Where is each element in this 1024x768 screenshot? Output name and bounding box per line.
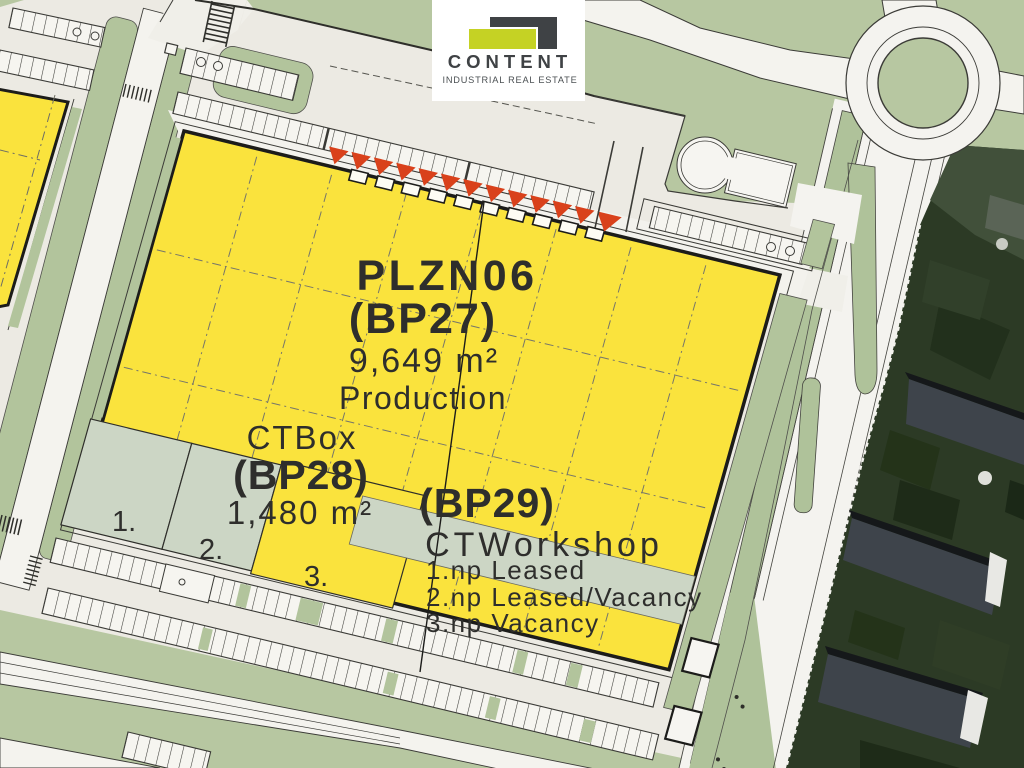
svg-text:INDUSTRIAL REAL ESTATE: INDUSTRIAL REAL ESTATE — [442, 75, 577, 85]
svg-text:9,649 m²: 9,649 m² — [349, 342, 499, 380]
svg-text:1.np Leased: 1.np Leased — [426, 555, 586, 585]
svg-text:1,480 m²: 1,480 m² — [227, 494, 373, 531]
svg-text:CTBox: CTBox — [247, 419, 358, 456]
svg-text:1.: 1. — [112, 506, 136, 538]
svg-text:(BP29): (BP29) — [419, 480, 555, 526]
svg-text:2.: 2. — [199, 534, 223, 566]
svg-text:CONTENT: CONTENT — [448, 51, 572, 72]
svg-text:(BP27): (BP27) — [349, 295, 497, 343]
svg-text:PLZN06: PLZN06 — [356, 252, 537, 300]
svg-text:3.: 3. — [304, 561, 328, 593]
svg-text:3.np Vacancy: 3.np Vacancy — [426, 608, 600, 638]
svg-text:(BP28): (BP28) — [233, 452, 369, 498]
svg-text:Production: Production — [339, 380, 507, 416]
